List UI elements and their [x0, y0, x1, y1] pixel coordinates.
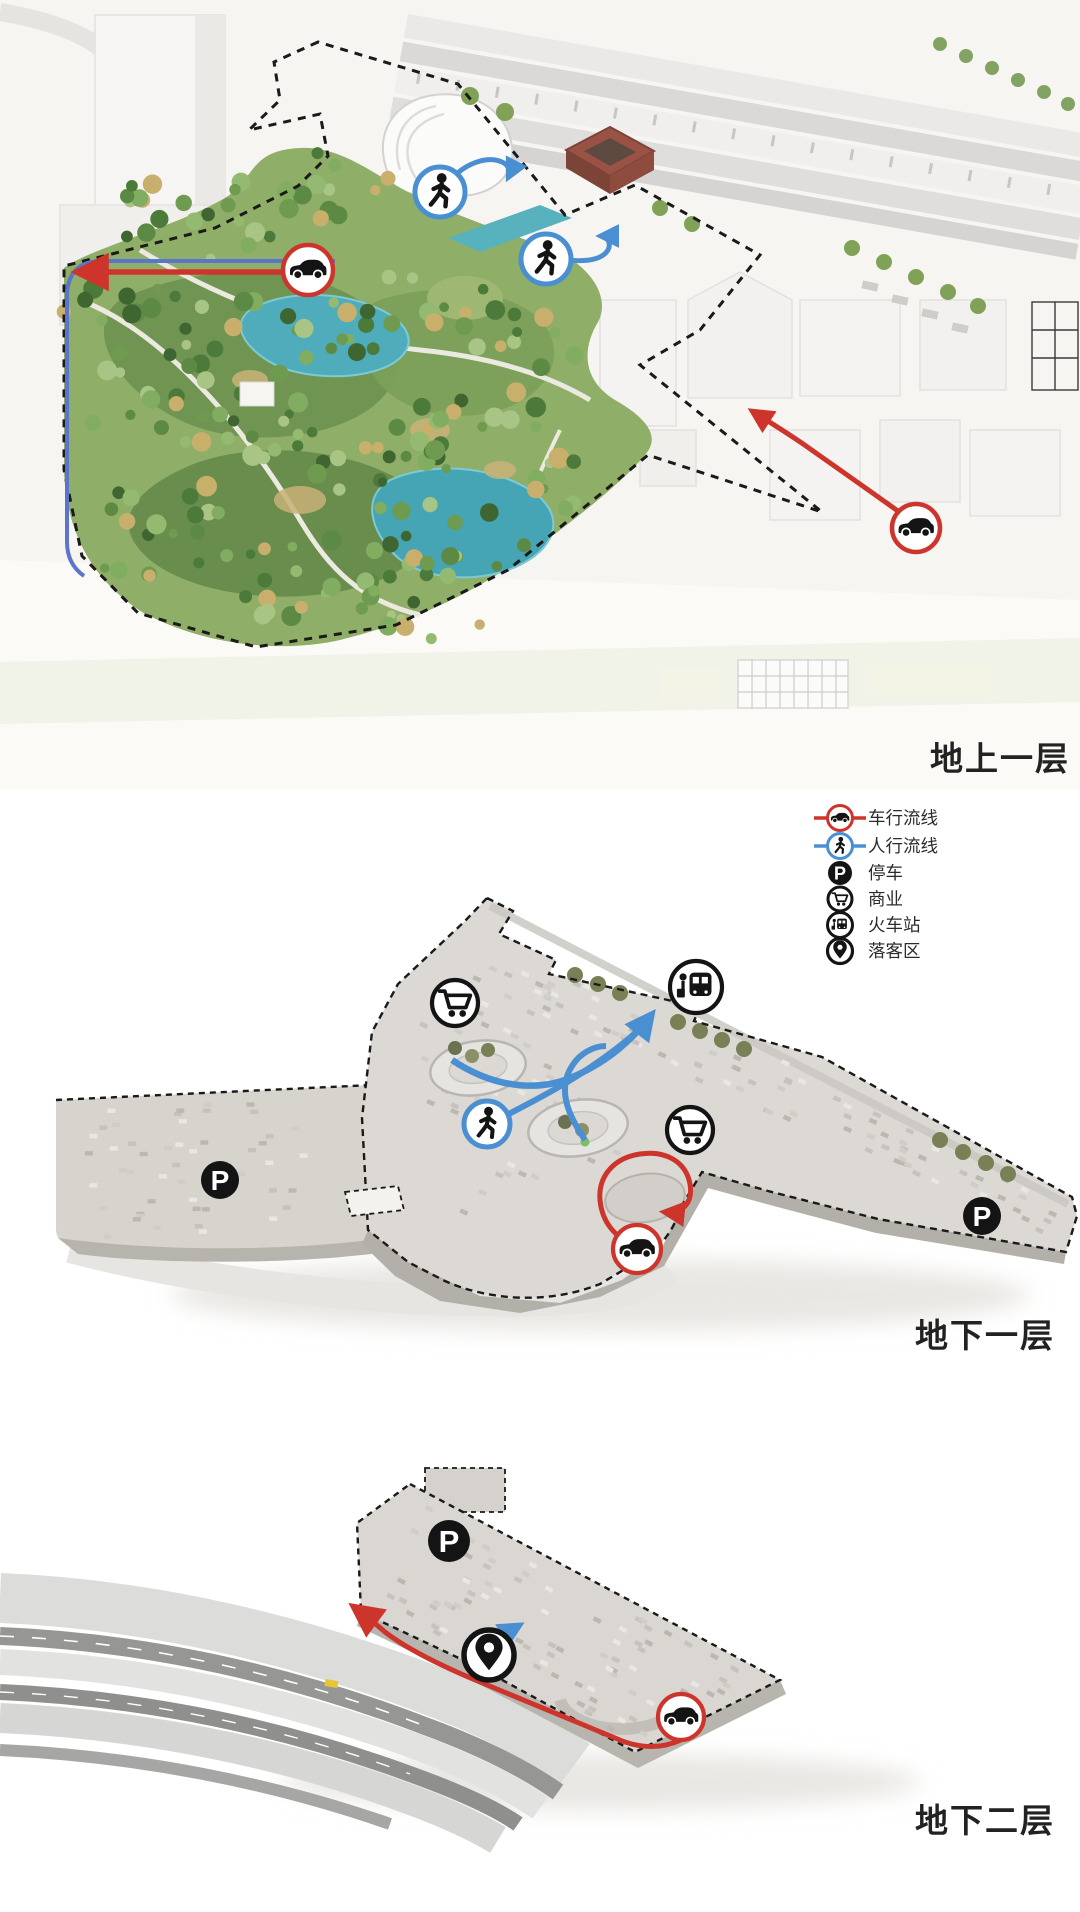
pedestrian-flow-icon — [521, 234, 571, 284]
pedestrian-flow-icon — [464, 1101, 510, 1147]
level-ground-label: 地上一层 — [930, 740, 1070, 777]
vehicle-flow-icon — [613, 1225, 661, 1273]
level-b2-label: 地下二层 — [915, 1802, 1055, 1839]
dropoff-icon — [828, 939, 853, 964]
train-station-icon — [670, 961, 722, 1013]
svg-text:火车站: 火车站 — [868, 915, 921, 935]
parking-icon: P — [201, 1161, 239, 1199]
svg-text:人行流线: 人行流线 — [868, 836, 938, 856]
svg-text:P: P — [211, 1165, 230, 1196]
parking-icon: P — [828, 861, 852, 885]
parking-icon: P — [428, 1520, 470, 1562]
legend-item-parking: P 停车 — [828, 861, 903, 885]
svg-text:商业: 商业 — [868, 889, 903, 909]
diagram-canvas: 地上一层 车行流线 人行流线 P 停车 商业 火车站 落 — [0, 0, 1080, 1912]
vehicle-flow-icon — [658, 1694, 704, 1740]
level-b1-label: 地下一层 — [915, 1317, 1055, 1354]
svg-text:车行流线: 车行流线 — [868, 808, 938, 828]
pedestrian-flow-icon — [828, 834, 853, 859]
vehicle-flow-icon — [892, 504, 940, 552]
train-station-icon — [828, 913, 853, 938]
vehicle-flow-icon — [283, 245, 333, 295]
svg-text:停车: 停车 — [868, 863, 903, 883]
svg-text:P: P — [834, 864, 846, 884]
legend-item-dropoff: 落客区 — [828, 939, 921, 964]
retail-icon — [828, 887, 852, 911]
svg-text:落客区: 落客区 — [868, 941, 921, 961]
legend: 车行流线 人行流线 P 停车 商业 火车站 落客区 — [814, 806, 938, 964]
retail-icon — [667, 1107, 713, 1153]
parking-icon: P — [963, 1197, 1001, 1235]
pedestrian-flow-icon — [415, 167, 465, 217]
legend-item-train-station: 火车站 — [828, 913, 921, 938]
legend-item-pedestrian: 人行流线 — [814, 834, 938, 859]
vehicle-flow-icon — [828, 806, 853, 831]
svg-text:P: P — [439, 1524, 460, 1559]
dropoff-icon — [464, 1630, 514, 1680]
site-circulation-diagram: 地上一层 车行流线 人行流线 P 停车 商业 火车站 落 — [0, 0, 1080, 1912]
svg-text:P: P — [973, 1201, 992, 1232]
level-b1-section: P P 地下一层 — [56, 898, 1077, 1354]
legend-item-vehicle: 车行流线 — [814, 806, 938, 831]
retail-icon — [432, 980, 478, 1026]
park-pavilion — [240, 382, 274, 406]
legend-item-retail: 商业 — [828, 887, 903, 911]
level-ground-section: 地上一层 — [0, 0, 1080, 790]
level-b2-section: P 地下二层 — [0, 1468, 1055, 1840]
